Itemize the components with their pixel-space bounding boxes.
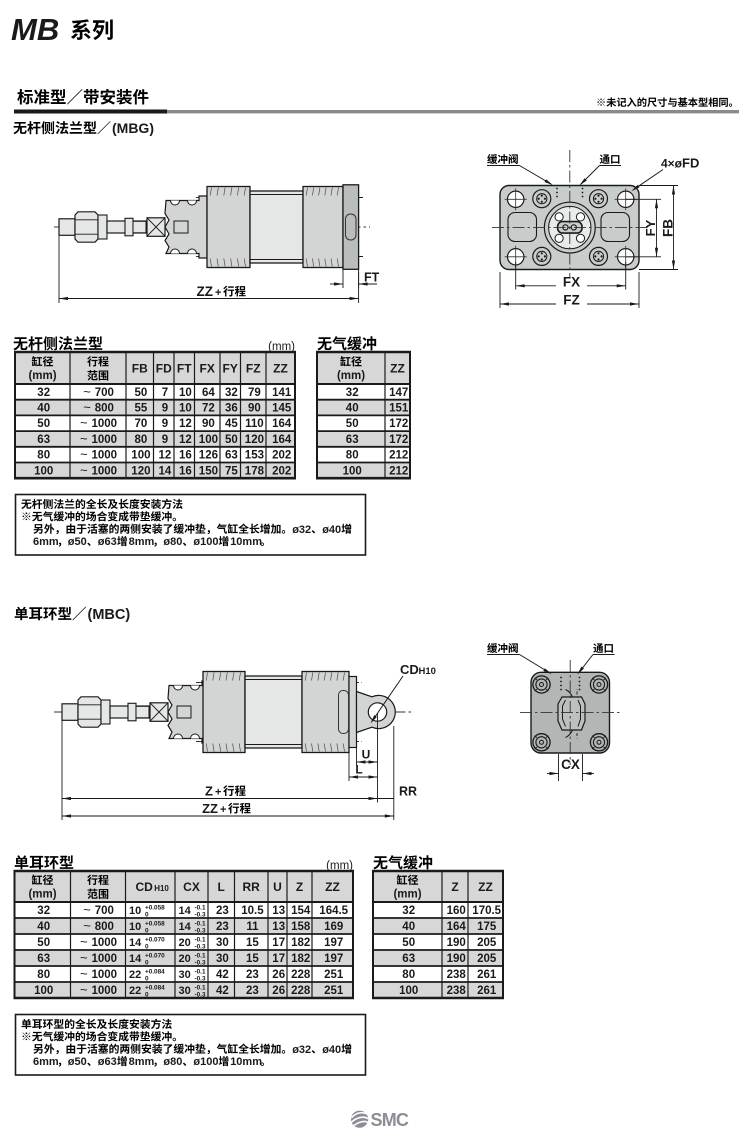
svg-text:164: 164	[272, 418, 292, 430]
svg-text:153: 153	[245, 450, 264, 462]
svg-text:ZZ: ZZ	[273, 362, 288, 376]
svg-text:42: 42	[216, 969, 229, 981]
svg-text:14: 14	[129, 953, 142, 965]
svg-text:0: 0	[145, 992, 149, 999]
svg-text:197: 197	[324, 953, 343, 965]
svg-text:+0.058: +0.058	[145, 904, 165, 911]
svg-text:70: 70	[135, 418, 148, 430]
svg-text:80: 80	[37, 969, 50, 981]
svg-text:14: 14	[159, 465, 172, 477]
svg-text:40: 40	[37, 403, 50, 415]
svg-text:0: 0	[145, 944, 149, 951]
svg-text:CX: CX	[183, 880, 200, 894]
svg-text:17: 17	[272, 937, 285, 949]
svg-text:0: 0	[145, 960, 149, 967]
svg-text:-0.3: -0.3	[195, 912, 206, 919]
svg-text:ø40: ø40	[322, 524, 341, 536]
svg-text:228: 228	[291, 985, 311, 997]
svg-text:32: 32	[346, 387, 359, 399]
svg-text:(mm): (mm)	[28, 889, 56, 901]
svg-text:212: 212	[389, 465, 408, 477]
svg-text:FZ: FZ	[246, 362, 261, 376]
svg-text:CD: CD	[136, 880, 154, 894]
svg-text:~: ~	[83, 918, 91, 933]
svg-text:30: 30	[216, 953, 229, 965]
svg-text:ø32: ø32	[292, 524, 311, 536]
svg-text:ZZ: ZZ	[478, 880, 493, 894]
svg-text:+: +	[220, 804, 226, 816]
svg-text:13: 13	[272, 921, 285, 933]
svg-text:202: 202	[272, 450, 291, 462]
svg-text:32: 32	[37, 387, 50, 399]
svg-text:~: ~	[80, 447, 88, 462]
svg-text:50: 50	[135, 387, 148, 399]
svg-text:20: 20	[179, 937, 191, 949]
svg-text:Z: Z	[296, 880, 303, 894]
svg-text:12: 12	[179, 434, 192, 446]
svg-text:ø40: ø40	[322, 1044, 341, 1056]
svg-text:FZ: FZ	[563, 293, 580, 308]
svg-text:(MBC): (MBC)	[88, 607, 131, 623]
svg-text:190: 190	[447, 937, 466, 949]
svg-text:147: 147	[389, 387, 408, 399]
svg-text:26: 26	[272, 969, 285, 981]
svg-text:-0.1: -0.1	[195, 936, 206, 943]
svg-text:151: 151	[389, 403, 409, 415]
svg-text:(MBG): (MBG)	[112, 120, 154, 136]
svg-text:164.5: 164.5	[319, 905, 348, 917]
svg-text:-0.1: -0.1	[195, 952, 206, 959]
svg-text:238: 238	[447, 969, 467, 981]
svg-text:~: ~	[83, 902, 91, 917]
svg-text:-0.3: -0.3	[195, 960, 206, 967]
svg-text:170.5: 170.5	[472, 905, 501, 917]
svg-text:~: ~	[83, 400, 91, 415]
svg-text:ZZ: ZZ	[325, 880, 340, 894]
svg-text:50: 50	[402, 937, 415, 949]
svg-text:MB: MB	[11, 12, 59, 47]
svg-text:9: 9	[162, 418, 168, 430]
svg-text:63: 63	[37, 953, 50, 965]
svg-text:-0.3: -0.3	[195, 944, 206, 951]
svg-text:50: 50	[225, 434, 238, 446]
svg-text:~: ~	[80, 982, 88, 997]
svg-text:+0.070: +0.070	[145, 952, 165, 959]
svg-text:16: 16	[179, 465, 192, 477]
svg-text:10: 10	[179, 387, 192, 399]
svg-text:32: 32	[37, 905, 50, 917]
svg-text:SMC: SMC	[371, 1110, 409, 1130]
svg-text:~: ~	[80, 934, 88, 949]
svg-text:6mm: 6mm	[33, 1056, 59, 1068]
svg-text:202: 202	[272, 465, 291, 477]
svg-text:ø32: ø32	[292, 1044, 311, 1056]
svg-text:172: 172	[389, 434, 408, 446]
svg-text:100: 100	[131, 450, 150, 462]
svg-text:12: 12	[159, 450, 172, 462]
svg-text:40: 40	[37, 921, 50, 933]
svg-text:50: 50	[37, 418, 50, 430]
svg-text:7: 7	[162, 387, 168, 399]
svg-text:141: 141	[272, 387, 292, 399]
svg-text:45: 45	[225, 418, 238, 430]
svg-text:110: 110	[245, 418, 264, 430]
svg-text:9: 9	[162, 403, 168, 415]
svg-text:145: 145	[272, 403, 292, 415]
svg-text:150: 150	[199, 465, 218, 477]
svg-text:10.5: 10.5	[241, 905, 264, 917]
svg-text:-0.1: -0.1	[195, 904, 206, 911]
svg-text:1000: 1000	[92, 937, 118, 949]
svg-text:50: 50	[37, 937, 50, 949]
svg-text:10: 10	[179, 403, 192, 415]
svg-text:ZZ: ZZ	[197, 284, 214, 299]
svg-text:251: 251	[324, 985, 344, 997]
svg-text:~: ~	[80, 431, 88, 446]
svg-text:-0.3: -0.3	[195, 992, 206, 999]
svg-text:H10: H10	[154, 884, 169, 893]
svg-text:Z: Z	[205, 784, 213, 799]
svg-text:63: 63	[402, 953, 415, 965]
svg-text:1000: 1000	[92, 953, 118, 965]
svg-text:+0.084: +0.084	[145, 984, 165, 991]
svg-text:182: 182	[291, 937, 310, 949]
svg-text:8mm: 8mm	[129, 536, 155, 548]
svg-text:+0.058: +0.058	[145, 920, 165, 927]
svg-text:H10: H10	[419, 666, 436, 677]
svg-text:23: 23	[246, 969, 259, 981]
svg-text:FB: FB	[661, 219, 676, 237]
svg-text:14: 14	[129, 937, 142, 949]
svg-text:228: 228	[291, 969, 311, 981]
svg-text:178: 178	[245, 465, 265, 477]
svg-text:~: ~	[80, 950, 88, 965]
svg-text:90: 90	[202, 418, 215, 430]
svg-text:100: 100	[34, 985, 53, 997]
svg-text:205: 205	[477, 953, 497, 965]
svg-text:1000: 1000	[92, 985, 118, 997]
svg-text:182: 182	[291, 953, 310, 965]
svg-text:+0.070: +0.070	[145, 936, 165, 943]
svg-text:120: 120	[245, 434, 264, 446]
svg-text:Z: Z	[451, 880, 458, 894]
svg-text:RR: RR	[399, 785, 417, 799]
svg-text:212: 212	[389, 450, 408, 462]
svg-text:FT: FT	[177, 362, 192, 376]
svg-text:U: U	[362, 748, 371, 762]
svg-text:251: 251	[324, 969, 344, 981]
svg-text:100: 100	[34, 465, 53, 477]
svg-text:700: 700	[95, 387, 114, 399]
svg-text:4×ø: 4×ø	[661, 157, 683, 171]
svg-text:+: +	[215, 787, 221, 799]
svg-text:FB: FB	[132, 362, 148, 376]
svg-text:261: 261	[477, 969, 497, 981]
svg-text:FX: FX	[563, 274, 580, 289]
svg-text:32: 32	[225, 387, 238, 399]
svg-text:172: 172	[389, 418, 408, 430]
svg-text:190: 190	[447, 953, 466, 965]
svg-text:-0.1: -0.1	[195, 920, 206, 927]
svg-text:36: 36	[225, 403, 238, 415]
svg-text:FX: FX	[200, 362, 215, 376]
svg-text:ZZ: ZZ	[390, 362, 405, 376]
svg-text:10: 10	[129, 921, 141, 933]
svg-text:12: 12	[179, 418, 192, 430]
svg-text:23: 23	[216, 921, 229, 933]
svg-text:~: ~	[80, 462, 88, 477]
svg-text:(mm): (mm)	[337, 370, 365, 382]
svg-text:63: 63	[346, 434, 359, 446]
svg-text:1000: 1000	[92, 465, 118, 477]
svg-text:-0.1: -0.1	[195, 984, 206, 991]
svg-text:FD: FD	[682, 156, 699, 171]
svg-text:175: 175	[477, 921, 497, 933]
svg-text:30: 30	[179, 985, 191, 997]
svg-text:14: 14	[179, 905, 192, 917]
svg-text:-0.1: -0.1	[195, 968, 206, 975]
svg-text:FT: FT	[364, 271, 380, 285]
svg-text:40: 40	[346, 403, 359, 415]
svg-text:ø50: ø50	[68, 536, 87, 548]
svg-text:RR: RR	[243, 880, 261, 894]
svg-text:158: 158	[291, 921, 311, 933]
svg-text:238: 238	[447, 985, 467, 997]
svg-text:800: 800	[95, 403, 114, 415]
svg-text:20: 20	[179, 953, 191, 965]
svg-text:197: 197	[324, 937, 343, 949]
svg-text:75: 75	[225, 465, 238, 477]
svg-text:CD: CD	[400, 662, 419, 677]
svg-text:22: 22	[129, 969, 141, 981]
svg-text:15: 15	[246, 953, 259, 965]
svg-text:30: 30	[216, 937, 229, 949]
svg-text:63: 63	[37, 434, 50, 446]
svg-text:800: 800	[95, 921, 114, 933]
svg-text:~: ~	[83, 384, 91, 399]
svg-text:1000: 1000	[92, 418, 118, 430]
svg-text:L: L	[355, 763, 362, 777]
svg-text:700: 700	[95, 905, 114, 917]
svg-text:26: 26	[272, 985, 285, 997]
svg-text:CX: CX	[561, 757, 580, 772]
svg-text:L: L	[218, 880, 225, 894]
svg-text:0: 0	[145, 976, 149, 983]
svg-text:0: 0	[145, 928, 149, 935]
svg-text:15: 15	[246, 937, 259, 949]
svg-text:80: 80	[402, 969, 415, 981]
svg-text:(mm): (mm)	[28, 370, 56, 382]
svg-text:ø63: ø63	[98, 1056, 117, 1068]
svg-text:~: ~	[80, 415, 88, 430]
svg-text:22: 22	[129, 985, 141, 997]
svg-text:17: 17	[272, 953, 285, 965]
svg-text:100: 100	[343, 465, 362, 477]
svg-text:23: 23	[246, 985, 259, 997]
svg-text:72: 72	[202, 403, 215, 415]
svg-text:100: 100	[199, 434, 218, 446]
svg-text:64: 64	[202, 387, 215, 399]
svg-text:80: 80	[135, 434, 148, 446]
svg-text:164: 164	[272, 434, 292, 446]
svg-text:1000: 1000	[92, 450, 118, 462]
svg-text:154: 154	[291, 905, 311, 917]
svg-text:10mm: 10mm	[230, 1056, 262, 1068]
svg-text:FY: FY	[643, 219, 658, 236]
svg-text:~: ~	[80, 966, 88, 981]
svg-text:13: 13	[272, 905, 285, 917]
svg-text:80: 80	[37, 450, 50, 462]
svg-text:11: 11	[246, 921, 259, 933]
svg-text:FY: FY	[223, 362, 238, 376]
svg-text:U: U	[273, 880, 282, 894]
svg-text:9: 9	[162, 434, 168, 446]
svg-text:14: 14	[179, 921, 192, 933]
svg-text:205: 205	[477, 937, 497, 949]
svg-text:ø50: ø50	[68, 1056, 87, 1068]
svg-text:ø100: ø100	[193, 536, 218, 548]
svg-text:1000: 1000	[92, 969, 118, 981]
svg-text:261: 261	[477, 985, 497, 997]
svg-text:120: 120	[131, 465, 150, 477]
svg-text:55: 55	[135, 403, 148, 415]
svg-text:(mm): (mm)	[393, 889, 421, 901]
svg-text:1000: 1000	[92, 434, 118, 446]
svg-text:63: 63	[225, 450, 238, 462]
svg-text:ø80: ø80	[163, 536, 182, 548]
svg-text:40: 40	[402, 921, 415, 933]
svg-text:ø100: ø100	[193, 1056, 218, 1068]
svg-text:10: 10	[129, 905, 141, 917]
svg-text:80: 80	[346, 450, 359, 462]
svg-text:ø80: ø80	[163, 1056, 182, 1068]
svg-text:8mm: 8mm	[129, 1056, 155, 1068]
svg-text:-0.3: -0.3	[195, 976, 206, 983]
svg-text:0: 0	[145, 912, 149, 919]
svg-text:16: 16	[179, 450, 192, 462]
svg-text:90: 90	[248, 403, 261, 415]
svg-text:ZZ: ZZ	[202, 801, 218, 816]
svg-text:126: 126	[199, 450, 218, 462]
svg-text:50: 50	[346, 418, 359, 430]
svg-text:30: 30	[179, 969, 191, 981]
svg-text:169: 169	[324, 921, 343, 933]
svg-text:-0.3: -0.3	[195, 928, 206, 935]
svg-text:32: 32	[402, 905, 415, 917]
svg-text:ø63: ø63	[98, 536, 117, 548]
svg-text:160: 160	[447, 905, 466, 917]
svg-text:100: 100	[399, 985, 418, 997]
svg-text:10mm: 10mm	[230, 536, 262, 548]
svg-text:+0.084: +0.084	[145, 968, 165, 975]
svg-text:42: 42	[216, 985, 229, 997]
svg-text:164: 164	[447, 921, 467, 933]
svg-text:6mm: 6mm	[33, 536, 59, 548]
svg-text:23: 23	[216, 905, 229, 917]
svg-text:+: +	[215, 287, 221, 299]
svg-text:FD: FD	[156, 362, 172, 376]
svg-text:79: 79	[248, 387, 261, 399]
